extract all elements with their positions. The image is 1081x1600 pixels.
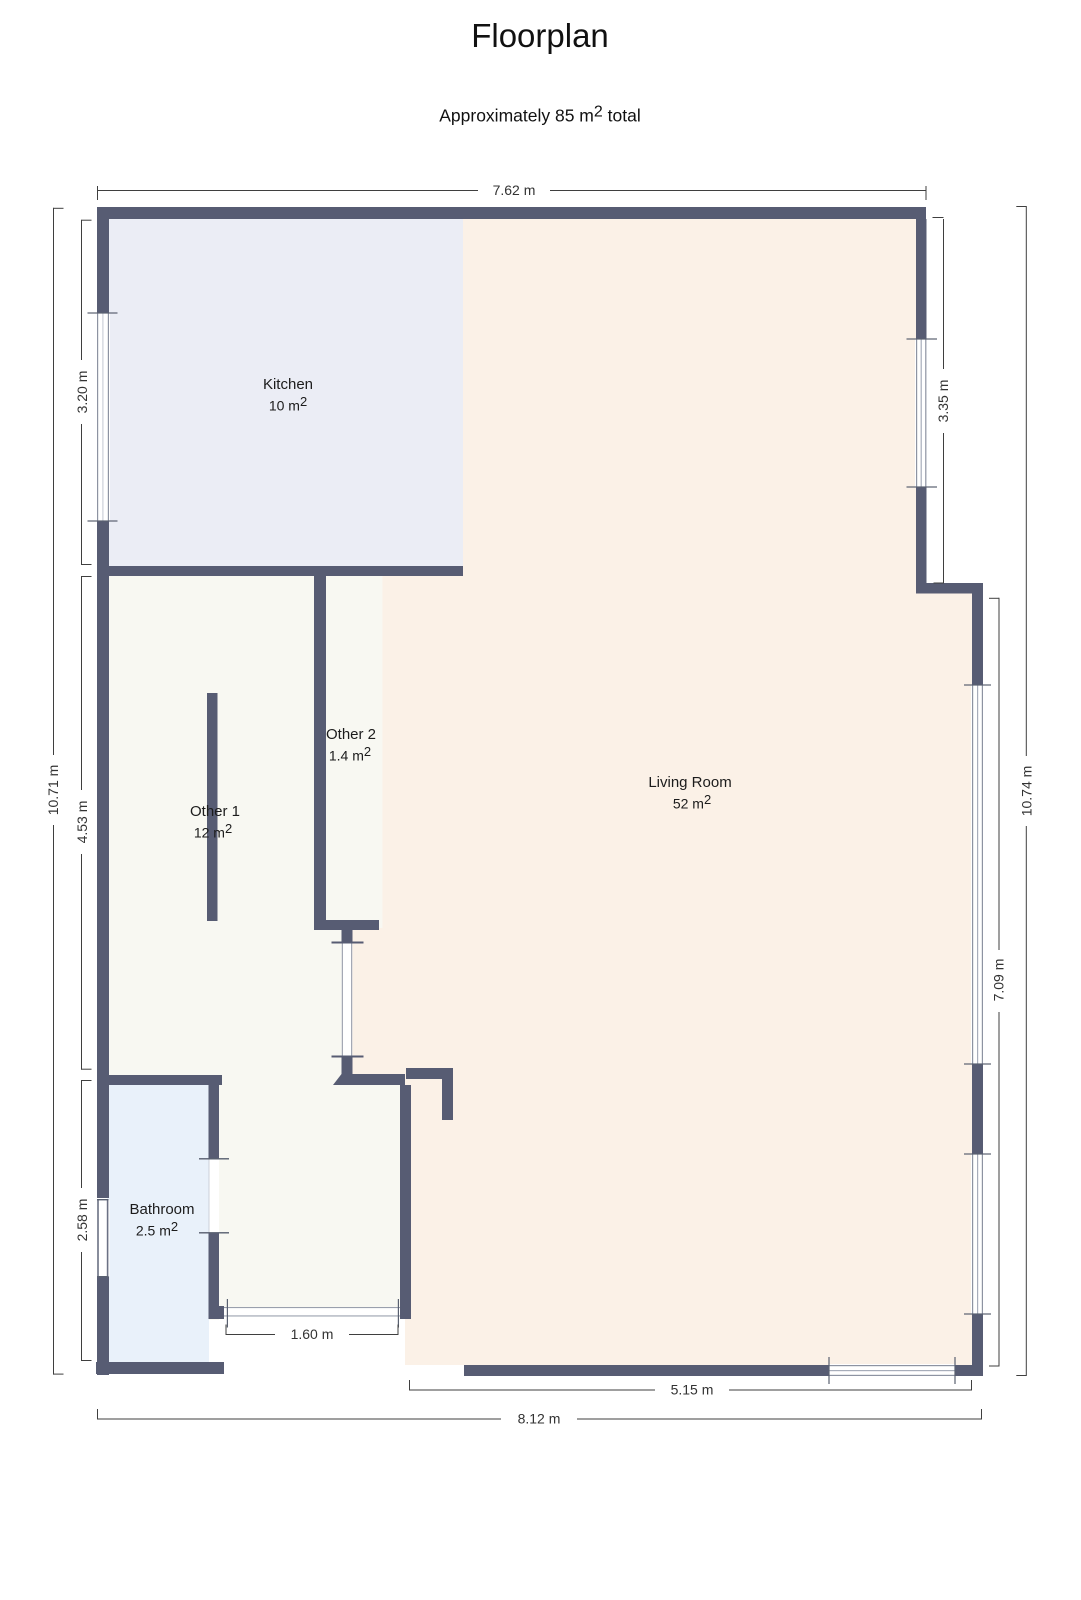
svg-text:2.58 m: 2.58 m (74, 1199, 90, 1242)
svg-text:Other 2: Other 2 (326, 726, 376, 743)
svg-text:Approximately 85 m2 total: Approximately 85 m2 total (439, 104, 641, 126)
svg-text:Living Room: Living Room (648, 774, 731, 791)
svg-text:10.74 m: 10.74 m (1019, 766, 1035, 817)
svg-text:7.09 m: 7.09 m (991, 959, 1007, 1002)
svg-text:5.15 m: 5.15 m (671, 1382, 714, 1398)
svg-text:8.12 m: 8.12 m (518, 1411, 561, 1427)
svg-text:3.20 m: 3.20 m (74, 371, 90, 414)
svg-text:3.35 m: 3.35 m (935, 380, 951, 423)
svg-text:Other 1: Other 1 (190, 803, 240, 820)
svg-text:4.53 m: 4.53 m (74, 801, 90, 844)
svg-text:Kitchen: Kitchen (263, 376, 313, 393)
svg-text:10.71 m: 10.71 m (45, 765, 61, 816)
svg-text:Floorplan: Floorplan (471, 17, 609, 54)
svg-text:Bathroom: Bathroom (129, 1201, 194, 1218)
svg-text:7.62 m: 7.62 m (493, 182, 536, 198)
svg-text:1.60 m: 1.60 m (291, 1326, 334, 1342)
